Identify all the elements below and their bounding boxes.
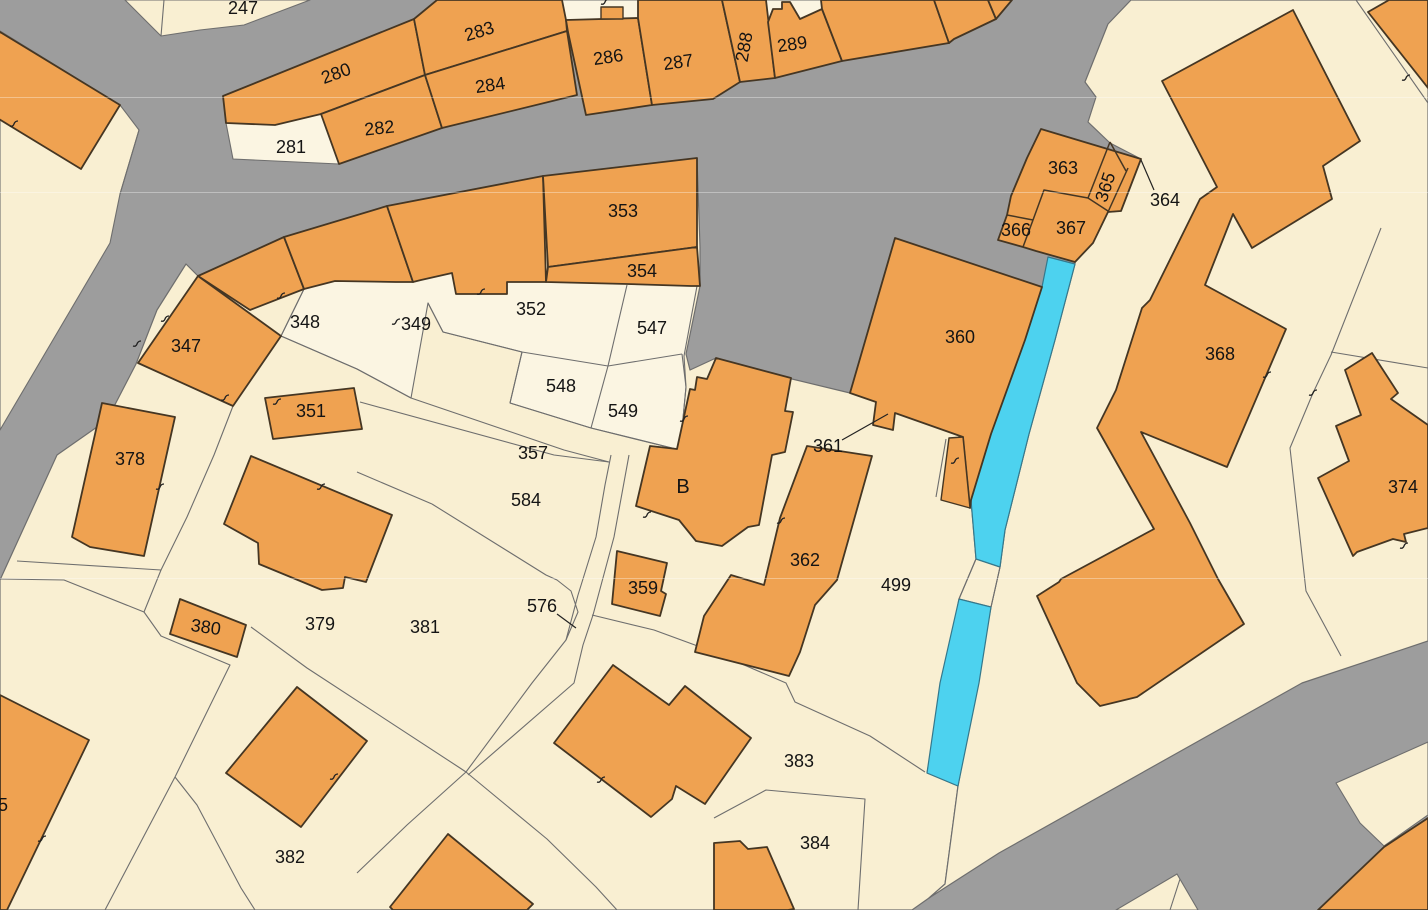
svg-text:348: 348	[290, 312, 320, 332]
svg-text:363: 363	[1048, 158, 1078, 178]
svg-text:499: 499	[881, 575, 911, 595]
svg-text:287: 287	[662, 50, 695, 74]
svg-text:366: 366	[1001, 220, 1031, 240]
svg-text:349: 349	[401, 314, 431, 334]
svg-text:361: 361	[813, 436, 843, 456]
svg-text:351: 351	[296, 401, 326, 421]
svg-text:549: 549	[608, 401, 638, 421]
svg-text:380: 380	[190, 615, 223, 639]
svg-text:357: 357	[518, 443, 548, 463]
svg-text:384: 384	[800, 833, 830, 853]
svg-text:284: 284	[474, 73, 507, 97]
svg-text:378: 378	[115, 449, 145, 469]
svg-text:354: 354	[627, 261, 657, 281]
svg-text:B: B	[676, 476, 689, 498]
svg-text:374: 374	[1388, 477, 1418, 497]
svg-text:352: 352	[516, 299, 546, 319]
svg-text:282: 282	[363, 117, 395, 140]
svg-text:364: 364	[1150, 190, 1180, 210]
svg-text:383: 383	[784, 751, 814, 771]
svg-text:289: 289	[776, 32, 809, 56]
svg-text:379: 379	[305, 614, 335, 634]
svg-text:362: 362	[790, 550, 820, 570]
svg-text:576: 576	[527, 596, 557, 616]
svg-text:368: 368	[1205, 344, 1235, 364]
svg-text:360: 360	[945, 327, 975, 347]
svg-text:584: 584	[511, 490, 541, 510]
svg-text:347: 347	[171, 336, 201, 356]
svg-text:286: 286	[592, 45, 625, 69]
svg-text:247: 247	[228, 0, 258, 18]
svg-text:359: 359	[628, 578, 658, 598]
svg-text:547: 547	[637, 318, 667, 338]
svg-text:5: 5	[0, 795, 8, 815]
svg-text:281: 281	[276, 137, 306, 157]
svg-text:382: 382	[275, 847, 305, 867]
svg-text:381: 381	[410, 617, 440, 637]
svg-text:548: 548	[546, 376, 576, 396]
svg-text:367: 367	[1056, 218, 1086, 238]
svg-text:353: 353	[608, 201, 638, 221]
